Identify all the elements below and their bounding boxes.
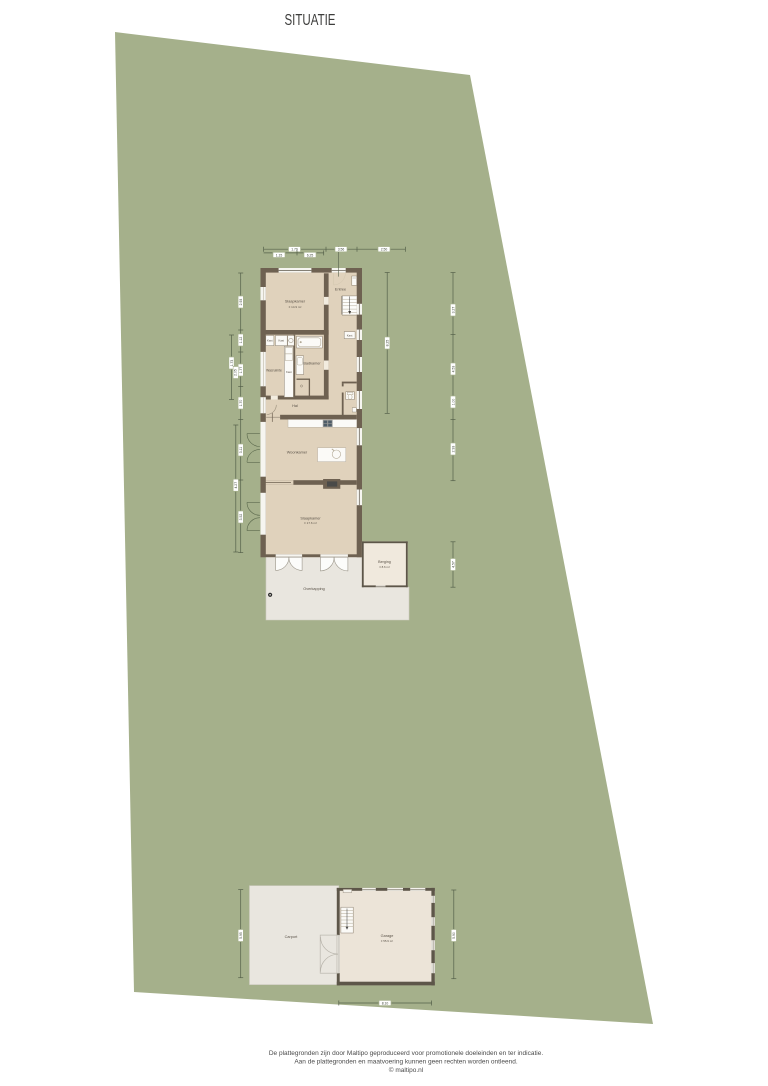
svg-text:Entree: Entree: [335, 288, 346, 292]
svg-text:8.10: 8.10: [382, 1001, 389, 1005]
svg-text:5.90: 5.90: [452, 932, 456, 939]
svg-text:De plattegronden zijn door Mal: De plattegronden zijn door Maltipo gepro…: [269, 1050, 543, 1057]
svg-text:3.27: 3.27: [451, 307, 455, 314]
svg-text:1.77: 1.77: [239, 367, 243, 374]
svg-text:1.15: 1.15: [276, 253, 283, 257]
svg-text:Garage: Garage: [381, 934, 394, 938]
svg-text:Kast: Kast: [278, 339, 284, 343]
svg-text:Kast: Kast: [286, 370, 292, 374]
svg-text:3.52: 3.52: [239, 514, 243, 521]
svg-text:Badkamer: Badkamer: [303, 362, 321, 366]
svg-text:Kast: Kast: [347, 333, 353, 337]
svg-text:8.25: 8.25: [386, 340, 390, 347]
svg-text:2.05: 2.05: [234, 369, 238, 376]
svg-text:4.27: 4.27: [234, 482, 238, 489]
svg-text:2.93: 2.93: [239, 299, 243, 306]
svg-text:Berging: Berging: [378, 560, 391, 564]
svg-text:Slaapkamer: Slaapkamer: [285, 300, 306, 304]
svg-text:4.53: 4.53: [451, 366, 455, 373]
svg-text:Kast: Kast: [267, 339, 273, 343]
svg-text:3.56: 3.56: [338, 248, 345, 252]
svg-text:Slaapkamer: Slaapkamer: [300, 517, 321, 521]
svg-text:6.25: 6.25: [307, 253, 314, 257]
svg-text:Aan de plattegronden en maatvo: Aan de plattegronden en maatvoering kunn…: [294, 1059, 518, 1066]
svg-text:1.70: 1.70: [239, 400, 243, 407]
svg-text:1.12: 1.12: [239, 337, 243, 344]
svg-text:SITUATIE: SITUATIE: [285, 12, 336, 29]
svg-text:2.50: 2.50: [381, 248, 388, 252]
svg-text:1.73: 1.73: [230, 360, 234, 367]
svg-text:2.93: 2.93: [451, 446, 455, 453]
svg-text:3.11: 3.11: [239, 447, 243, 453]
svg-text:4.57: 4.57: [451, 561, 455, 568]
svg-text:± 8.6 m²: ± 8.6 m²: [379, 565, 390, 569]
svg-text:1.00: 1.00: [451, 399, 455, 406]
svg-text:Woonkamer: Woonkamer: [287, 451, 308, 455]
svg-text:Hal: Hal: [292, 404, 298, 408]
svg-text:Wasruimte: Wasruimte: [266, 369, 282, 373]
svg-text:5.95: 5.95: [239, 932, 243, 939]
svg-text:± 14.9 m²: ± 14.9 m²: [289, 305, 302, 309]
svg-text:Carport: Carport: [285, 935, 299, 939]
svg-text:± 55.9 m²: ± 55.9 m²: [381, 939, 393, 943]
svg-text:Overkapping: Overkapping: [303, 587, 325, 591]
svg-text:© maltipo.nl: © maltipo.nl: [389, 1066, 424, 1074]
svg-text:± 17.6 m²: ± 17.6 m²: [304, 521, 317, 525]
